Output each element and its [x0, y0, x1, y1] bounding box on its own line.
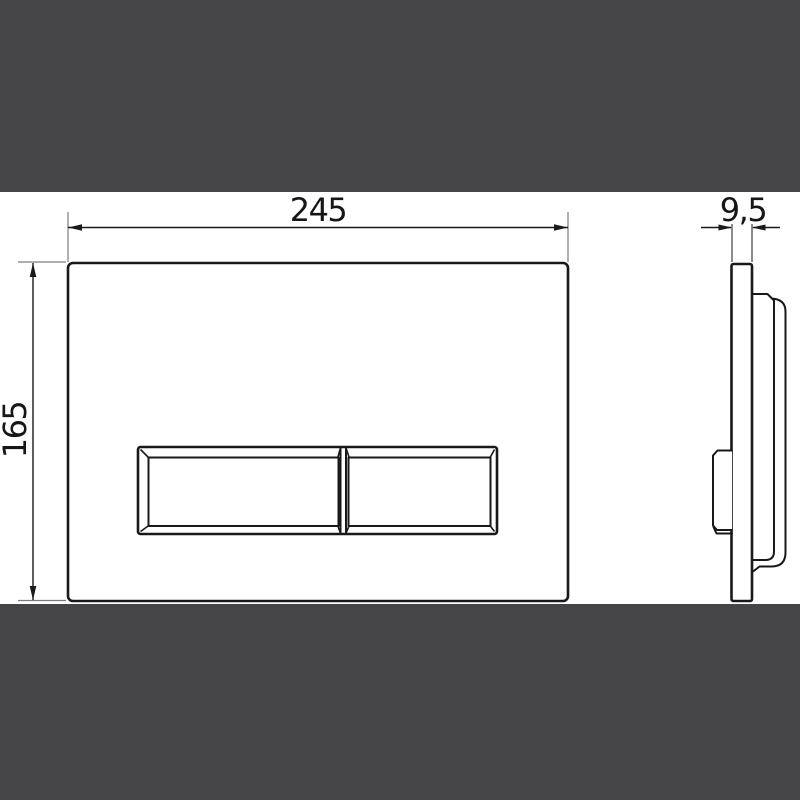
width-arrow-left [68, 224, 82, 231]
width-arrow-right [554, 224, 568, 231]
mounting-frame-inner-step [752, 294, 774, 560]
flush-button-outer-frame [138, 447, 497, 534]
side-view-plate-profile [732, 264, 753, 601]
front-view-plate [68, 263, 568, 601]
height-dimension-label: 165 [0, 402, 34, 459]
height-arrow-bottom [30, 586, 37, 600]
thickness-dimension-label: 9,5 [720, 191, 766, 229]
width-dimension-label: 245 [290, 191, 347, 229]
front-view [68, 263, 568, 601]
side-view [713, 264, 786, 601]
height-arrow-top [30, 263, 37, 277]
technical-drawing: 245 165 9,5 [0, 0, 800, 800]
drawing-canvas: 245 165 9,5 [0, 0, 800, 800]
side-view-button-profile [713, 451, 732, 531]
